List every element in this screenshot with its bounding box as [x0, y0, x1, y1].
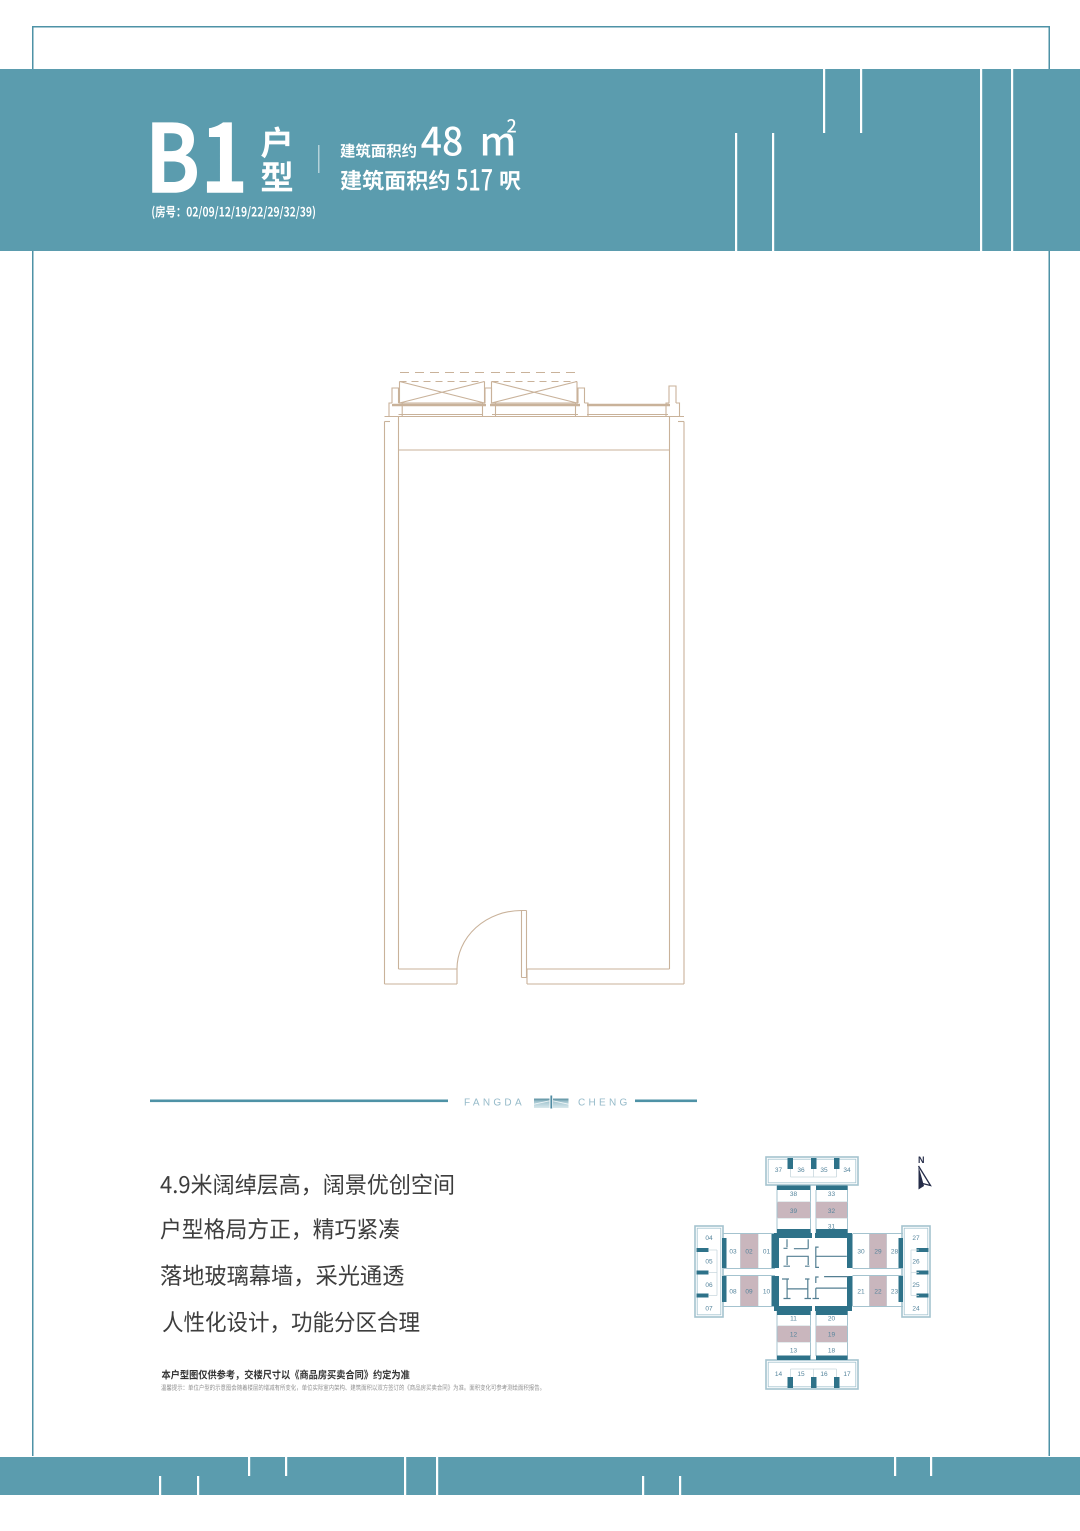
svg-text:23: 23: [891, 1289, 899, 1296]
svg-text:09: 09: [745, 1289, 753, 1296]
svg-text:32: 32: [828, 1208, 836, 1215]
svg-text:35: 35: [820, 1167, 828, 1174]
svg-text:27: 27: [912, 1235, 920, 1242]
svg-text:04: 04: [705, 1235, 713, 1242]
svg-text:30: 30: [857, 1249, 865, 1256]
svg-text:06: 06: [705, 1282, 713, 1289]
svg-text:19: 19: [828, 1332, 836, 1339]
svg-text:13: 13: [790, 1348, 798, 1355]
svg-text:N: N: [918, 1155, 925, 1165]
svg-text:20: 20: [828, 1316, 836, 1323]
svg-text:18: 18: [828, 1348, 836, 1355]
svg-text:15: 15: [797, 1371, 805, 1378]
svg-text:25: 25: [912, 1282, 920, 1289]
svg-text:01: 01: [763, 1249, 771, 1256]
svg-text:21: 21: [857, 1289, 865, 1296]
svg-text:38: 38: [790, 1191, 798, 1198]
svg-text:28: 28: [891, 1249, 899, 1256]
svg-text:31: 31: [828, 1224, 836, 1231]
svg-text:08: 08: [729, 1289, 737, 1296]
svg-text:12: 12: [790, 1332, 798, 1339]
svg-text:34: 34: [843, 1167, 851, 1174]
svg-text:03: 03: [729, 1249, 737, 1256]
svg-text:29: 29: [874, 1249, 882, 1256]
svg-text:36: 36: [797, 1167, 805, 1174]
svg-text:33: 33: [828, 1191, 836, 1198]
svg-text:16: 16: [820, 1371, 828, 1378]
svg-text:37: 37: [775, 1167, 783, 1174]
svg-text:05: 05: [705, 1259, 713, 1266]
svg-text:CHENG: CHENG: [578, 1098, 631, 1109]
svg-text:FANGDA: FANGDA: [464, 1098, 525, 1109]
svg-text:22: 22: [874, 1289, 882, 1296]
svg-text:02: 02: [745, 1249, 753, 1256]
svg-text:24: 24: [912, 1306, 920, 1313]
svg-text:17: 17: [843, 1371, 851, 1378]
svg-text:07: 07: [705, 1306, 713, 1313]
svg-text:26: 26: [912, 1259, 920, 1266]
svg-text:10: 10: [763, 1289, 771, 1296]
svg-text:39: 39: [790, 1208, 798, 1215]
svg-text:11: 11: [790, 1316, 797, 1323]
svg-text:14: 14: [775, 1371, 783, 1378]
